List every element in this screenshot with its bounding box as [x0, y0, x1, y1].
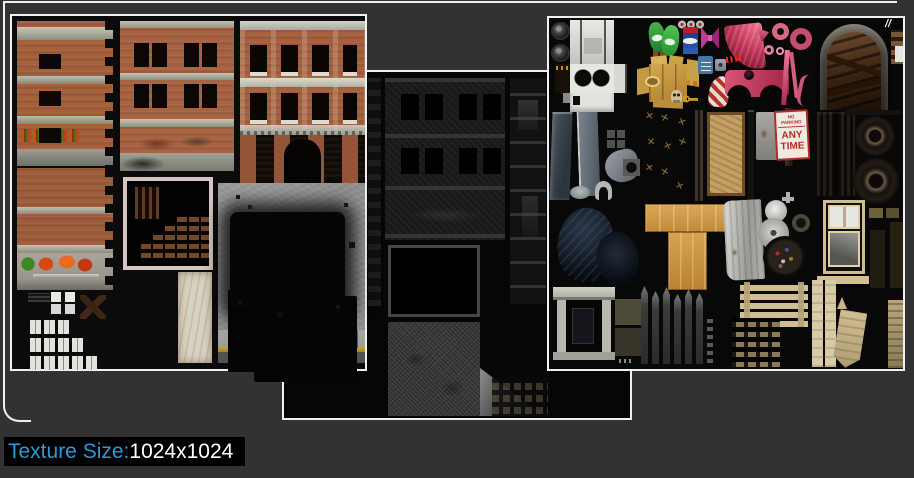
arch-wood-boards	[827, 32, 881, 110]
brick-wall-texture-1	[17, 21, 113, 166]
dark-window-grid	[492, 378, 548, 416]
cork-board-texture	[707, 112, 745, 196]
bike-fender-band	[725, 70, 789, 97]
dark-facade-strip	[510, 78, 546, 304]
blue-sign-card	[698, 56, 713, 74]
sign-line-2: TIME	[777, 140, 808, 153]
stone-base	[553, 352, 615, 360]
texture-size-value: 1024x1024	[129, 440, 233, 464]
wood-pallet-grid-texture	[732, 318, 780, 367]
stone-window-frame-texture	[553, 287, 615, 362]
dark-shutter	[870, 230, 885, 288]
oval-lid	[570, 186, 590, 199]
tilted-plank	[832, 309, 868, 370]
wood-edge-plank	[888, 300, 903, 368]
box-label-oval	[645, 76, 660, 87]
amber-chips	[686, 80, 698, 86]
slide-canvas: // ✕ ✕ ✕ ✕ ✕ ✕ ✕ ✕ ✕ NO PARKING ANY TIME	[0, 0, 914, 478]
trash-contents-circle	[763, 236, 807, 278]
bike-wheel-ring-1	[772, 23, 789, 40]
lid-handle	[782, 192, 794, 203]
double-pole	[695, 110, 703, 201]
bike-small-ring-1	[764, 45, 774, 55]
olive-side-tiles	[615, 299, 641, 356]
x-brace-texture	[80, 295, 106, 319]
grooved-dark-blocks	[817, 112, 855, 196]
black-pole	[748, 110, 754, 200]
fence-spikes-texture	[641, 284, 707, 364]
dark-frame-outline	[388, 245, 480, 317]
arched-doorway	[284, 139, 321, 186]
stove-texture	[555, 20, 627, 112]
cardboard-t-bar	[645, 204, 730, 232]
moth-icon: ✕	[644, 163, 654, 174]
vent-circle-square	[623, 159, 640, 176]
window-swatch-pair-1	[51, 292, 75, 302]
bike-small-ring-2	[776, 47, 784, 55]
dark-edge-strip	[890, 222, 903, 288]
dark-ring-lid	[792, 214, 810, 232]
moth-icon: ✕	[660, 113, 671, 125]
tire-texture-2	[853, 158, 899, 204]
arch-cross-beam-2	[827, 77, 881, 97]
moth-icon: ✕	[662, 141, 673, 153]
metal-sheet-1	[549, 112, 572, 200]
gray-square-swatches	[607, 130, 625, 148]
dark-brick-wall	[385, 78, 505, 240]
stone-frame-window	[572, 308, 594, 344]
diffuse-texture-atlas-panel	[10, 14, 367, 371]
texture-size-label: Texture Size:	[8, 440, 129, 464]
vertical-planks	[812, 280, 836, 367]
building-footprint-shadow	[230, 212, 345, 310]
gold-key	[683, 95, 698, 104]
window-frame-texture	[823, 200, 865, 274]
moth-icon: ✕	[677, 137, 689, 149]
bolt-moth-cluster: ✕ ✕ ✕ ✕ ✕ ✕ ✕ ✕ ✕	[645, 112, 693, 200]
props-texture-atlas-panel: // ✕ ✕ ✕ ✕ ✕ ✕ ✕ ✕ ✕ NO PARKING ANY TIME	[547, 16, 905, 371]
moth-icon: ✕	[675, 117, 687, 130]
dark-rubble-texture	[551, 206, 641, 290]
concrete-grunge-strip	[178, 272, 212, 363]
window-lower-pane	[828, 231, 860, 267]
soda-can-blue	[683, 27, 698, 54]
window-swatch-row-1	[30, 320, 70, 334]
horseshoe-arch-piece	[595, 181, 612, 200]
bike-wheel-ring-2	[790, 28, 812, 50]
moth-icon: ✕	[674, 181, 685, 193]
storefront-texture	[240, 135, 365, 186]
triple-dots	[619, 359, 633, 363]
window-swatch-row-3	[30, 356, 98, 370]
framed-night-windows-texture	[123, 177, 213, 270]
bike-fork-hook	[795, 73, 811, 106]
stone-cornice	[553, 287, 615, 300]
moth-icon: ✕	[647, 138, 656, 149]
moth-icon: ✕	[644, 111, 654, 122]
cardboard-t-stem	[668, 232, 707, 290]
stove-tab	[563, 93, 570, 103]
white-card	[895, 46, 903, 62]
stove-top-panel	[570, 20, 614, 66]
texture-size-caption: Texture Size:1024x1024	[4, 437, 245, 466]
olive-tile-1	[869, 208, 883, 218]
chain-dots-column	[707, 318, 713, 363]
pink-bow-knot	[708, 35, 712, 41]
brick-wall-graffiti-texture	[17, 168, 113, 290]
ground-street-texture	[218, 183, 365, 363]
pink-bicycle-parts	[724, 20, 810, 110]
sign-header: NO PARKING	[777, 114, 805, 128]
stone-column-right	[602, 300, 611, 352]
stone-column-left	[557, 300, 566, 352]
slide-border-bottom-left-corner	[3, 385, 31, 422]
stove-left-strip	[555, 64, 570, 93]
stove-burner-panel	[570, 64, 614, 93]
window-top-sash	[828, 205, 860, 229]
tire-shelf-bar	[845, 110, 901, 115]
olive-tile-2	[886, 208, 899, 218]
brick-wall-texture-2	[120, 21, 234, 171]
dark-wall-sliver	[368, 78, 381, 306]
bike-bolt	[744, 70, 754, 80]
stove-right-strip	[614, 64, 627, 93]
stove-lower-panel	[570, 93, 614, 112]
no-parking-sign: NO PARKING ANY TIME	[774, 109, 811, 161]
debris-specks	[218, 183, 222, 187]
building-facade-texture	[240, 21, 365, 186]
blind-swatch	[28, 293, 50, 302]
moth-icon: ✕	[660, 167, 670, 179]
arch-cross-beam-1	[827, 53, 881, 77]
window-swatch-row-2	[30, 338, 84, 352]
dark-concrete-square	[388, 322, 480, 416]
boarded-arch-door-texture	[815, 22, 893, 112]
tire-texture-1	[855, 116, 895, 156]
window-swatch-pair-2	[51, 304, 75, 314]
wood-wedge	[837, 297, 847, 309]
skull-prop	[671, 90, 682, 103]
